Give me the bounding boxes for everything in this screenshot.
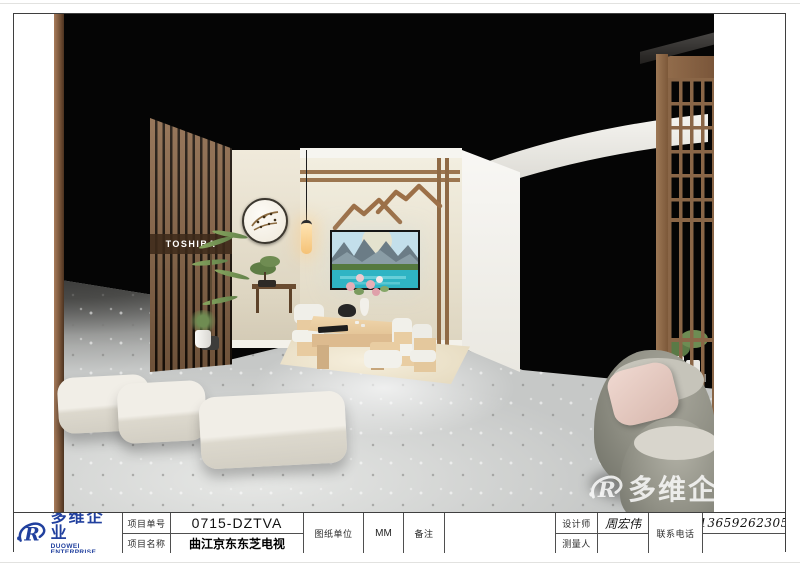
phone-label: 联系电话 xyxy=(648,513,702,553)
bonsai-foliage xyxy=(260,256,280,267)
ottoman-bench xyxy=(198,390,348,470)
designer-value: 周宏伟 xyxy=(597,513,648,533)
return-wall xyxy=(462,150,520,372)
company-name-en: DUOWEI ENTERPRISE xyxy=(51,544,120,554)
tea-cup xyxy=(355,321,359,324)
floor-chair-cushion xyxy=(364,350,402,368)
render-viewport: TOSHIBA xyxy=(14,14,785,512)
console-leg xyxy=(256,289,259,313)
svg-text:R: R xyxy=(23,525,39,546)
unit-label: 图纸单位 xyxy=(303,513,363,553)
title-block: R 多维企业 DUOWEI ENTERPRISE 项目单号 项目名称 0715-… xyxy=(14,512,785,552)
wall-lamp xyxy=(301,220,312,254)
lamp-cord xyxy=(306,150,307,220)
booth-render-scene: TOSHIBA xyxy=(54,14,714,512)
tower-lattice-upper xyxy=(668,78,714,218)
flower-bouquet xyxy=(342,272,390,304)
bonsai-pot xyxy=(258,280,276,287)
sheet-frame: TOSHIBA xyxy=(13,13,786,552)
project-no-label: 项目单号 xyxy=(122,513,170,533)
unit-value: MM xyxy=(363,513,403,553)
table-leg xyxy=(317,345,329,369)
floor-chair-cushion xyxy=(410,350,436,362)
surveyor-value xyxy=(597,533,648,553)
svg-text:R: R xyxy=(597,478,616,503)
tall-plant xyxy=(172,214,252,354)
project-name-label: 项目名称 xyxy=(122,533,170,553)
potted-plant-foliage xyxy=(188,310,218,332)
company-name-cn: 多维企业 xyxy=(51,513,120,542)
project-name-value: 曲江京东东芝电视 xyxy=(170,533,303,553)
teapot xyxy=(338,304,356,317)
project-no-value: 0715-DZTVA xyxy=(170,513,303,533)
watermark-logo-icon: R xyxy=(588,470,624,506)
phone-value-empty xyxy=(702,533,785,553)
page-top-edge xyxy=(0,3,800,4)
ottoman-bench xyxy=(116,380,207,445)
drawing-sheet: TOSHIBA xyxy=(0,0,800,566)
surveyor-label: 测量人 xyxy=(555,533,597,553)
company-logo: R 多维企业 DUOWEI ENTERPRISE xyxy=(14,513,122,553)
white-planter xyxy=(195,330,211,348)
armchair-cushion xyxy=(634,426,714,460)
watermark-text: 多维企 xyxy=(628,468,714,508)
page-bottom-edge xyxy=(0,562,800,563)
console-leg xyxy=(289,289,292,313)
left-wood-pillar xyxy=(54,14,64,512)
duowei-logo-icon: R xyxy=(16,517,47,549)
wood-trim xyxy=(300,170,460,174)
watermark: R 多维企 xyxy=(588,462,714,512)
designer-label: 设计师 xyxy=(555,513,597,533)
tea-cup xyxy=(361,324,365,327)
remarks-value xyxy=(444,513,555,553)
phone-value: 13659262305 xyxy=(702,513,785,533)
remarks-label: 备注 xyxy=(403,513,444,553)
